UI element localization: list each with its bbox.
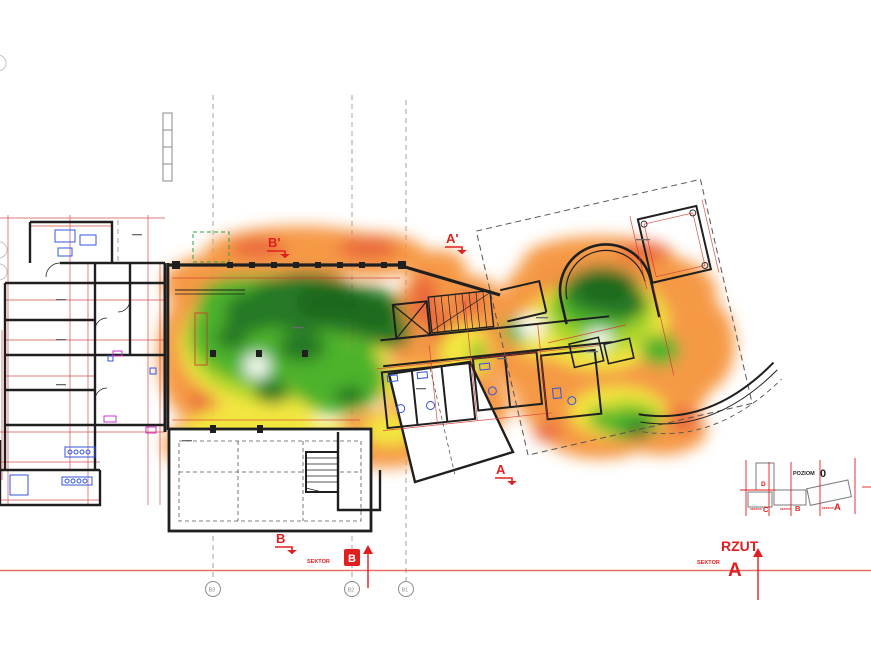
left-wing-furniture (10, 230, 156, 495)
svg-text:D: D (761, 481, 766, 488)
sector-b-callout: SEKTOR B (307, 545, 373, 588)
left-wing (0, 215, 165, 505)
svg-text:SEKTOR: SEKTOR (750, 507, 762, 511)
left-wing-walls (0, 222, 165, 505)
grid-bubble-partial (0, 242, 7, 258)
key-plan: POZIOM 0 D C B A SEKTOR SEKTOR SEKTOR (740, 458, 871, 516)
svg-text:A: A (728, 560, 742, 581)
svg-text:B3: B3 (209, 588, 216, 594)
edge-grid-bubbles (0, 55, 7, 280)
grid-bubble-b2: B2 (345, 582, 360, 597)
grid-bubble-partial (0, 264, 7, 280)
svg-text:B1: B1 (402, 588, 409, 594)
svg-text:SEKTOR: SEKTOR (697, 560, 720, 566)
key-plan-level-number: 0 (820, 468, 826, 480)
floor-plan-viewer: B' A' A B SEKTOR B RZUT SEKTOR A (0, 0, 871, 657)
terrace-walls (169, 429, 371, 531)
section-marker-b-bottom: B (275, 531, 297, 554)
left-wing-dimension-lines (0, 215, 165, 505)
section-marker-a-prime: A' (445, 231, 467, 254)
svg-text:C: C (763, 505, 769, 514)
svg-text:A: A (496, 462, 506, 477)
svg-text:A': A' (446, 231, 458, 246)
grid-bubble-b1: B1 (399, 582, 414, 597)
svg-text:A: A (834, 502, 841, 513)
sector-b-arrow (363, 545, 373, 588)
svg-text:RZUT: RZUT (721, 538, 759, 554)
grid-bubble-b3: B3 (206, 582, 221, 597)
grid-bubble-partial (0, 55, 6, 71)
svg-text:SEKTOR: SEKTOR (307, 559, 330, 565)
grid-bubbles: B3 B2 B1 (206, 582, 414, 597)
floor-plan-drawing: B' A' A B SEKTOR B RZUT SEKTOR A (0, 0, 871, 657)
wall-ladder-stub (163, 113, 172, 181)
key-plan-level-label: POZIOM (793, 471, 815, 477)
svg-text:SEKTOR: SEKTOR (780, 507, 792, 511)
view-title-arrow (753, 548, 763, 600)
svg-text:B: B (276, 531, 285, 546)
svg-text:B: B (348, 553, 356, 565)
svg-text:SEKTOR: SEKTOR (822, 506, 834, 510)
view-title: RZUT SEKTOR A (697, 538, 763, 600)
section-marker-a-bottom: A (495, 462, 517, 485)
svg-text:B': B' (268, 235, 280, 250)
svg-text:B2: B2 (348, 588, 355, 594)
svg-text:B: B (795, 504, 801, 513)
